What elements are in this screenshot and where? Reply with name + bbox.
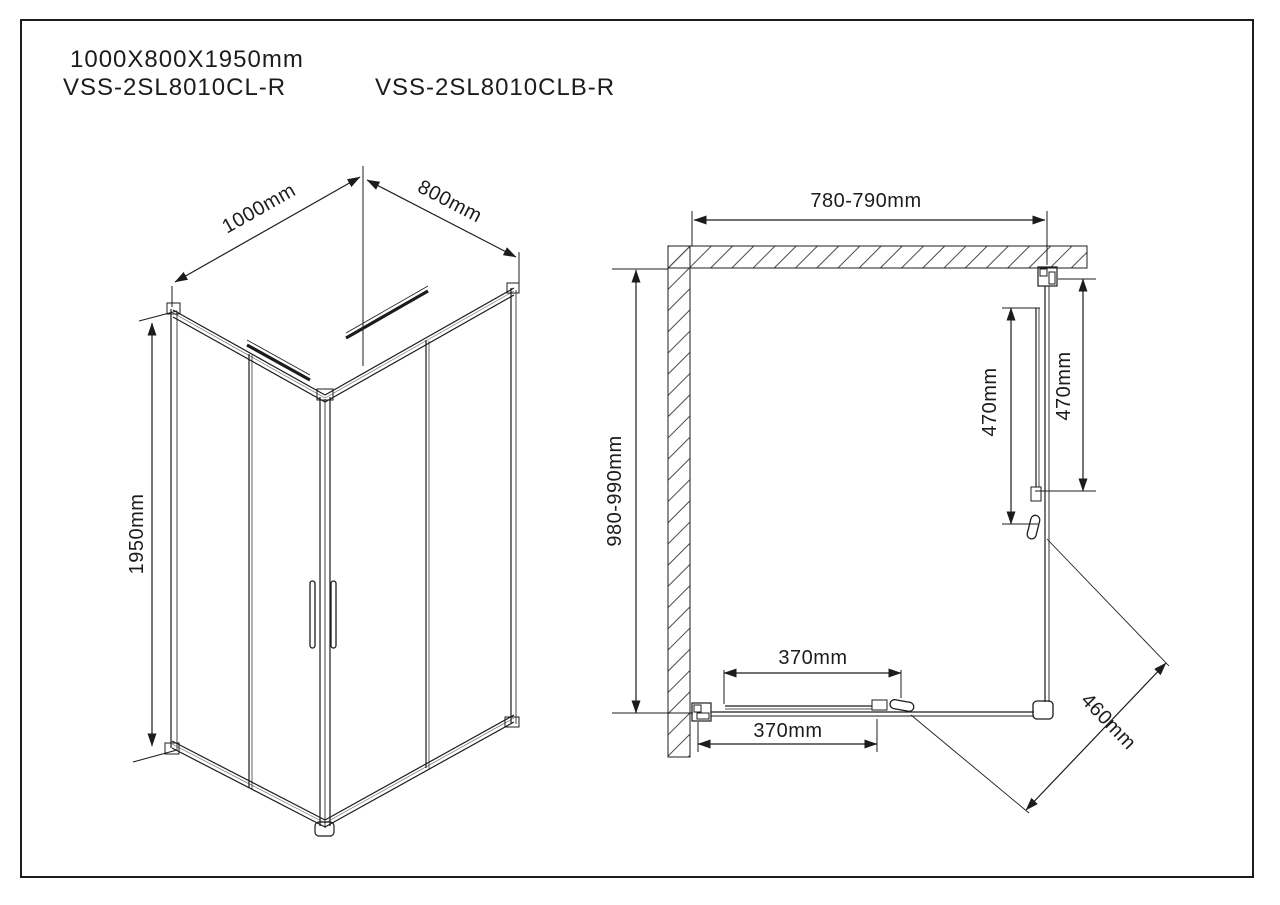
bottom-door-dimension: 370mm [724,647,901,704]
right-fixed-label: 470mm [1053,351,1075,420]
iso-panel-division-left [249,354,252,789]
iso-depth-label: 800mm [414,176,486,227]
iso-width-label: 1000mm [218,179,299,238]
iso-depth-dimension: 800mm [367,176,519,286]
iso-door-handles [310,581,336,648]
plan-right-side-assembly [1026,267,1057,702]
corner-opening-label: 460mm [1076,689,1140,754]
model-name-right: VSS-2SL8010CLB-R [375,74,615,101]
iso-top-rail-right [325,288,514,402]
right-door-label: 470mm [979,367,1001,436]
plan-left-wall [668,246,690,757]
iso-right-edge-profile [505,283,519,727]
title-block: 1000X800X1950mm VSS-2SL8010CL-R VSS-2SL8… [63,46,615,101]
model-name-left: VSS-2SL8010CL-R [63,74,286,101]
right-door-end-block [1031,487,1041,501]
right-door-handle-plan [1026,514,1041,539]
plan-view: 780-790mm 980-990mm 470mm [604,190,1169,813]
bottom-door-handle-plan [889,699,914,712]
left-door-handle [310,581,315,648]
sheet-border [21,20,1253,877]
right-door-handle [331,581,336,648]
plan-depth-label: 980-990mm [604,435,626,546]
iso-left-edge-profile [165,303,180,754]
drawing-sheet: 1000X800X1950mm VSS-2SL8010CL-R VSS-2SL8… [0,0,1280,905]
right-fixed-dimension: 470mm [1035,279,1096,491]
iso-height-label: 1950mm [126,494,148,575]
plan-width-label: 780-790mm [810,190,921,212]
iso-bottom-rail-right [325,715,514,827]
bottom-fixed-label: 370mm [753,720,822,742]
plan-bottom-side-assembly [692,699,1034,721]
technical-drawing-canvas: 1000X800X1950mm VSS-2SL8010CL-R VSS-2SL8… [0,0,1280,905]
size-label: 1000X800X1950mm [70,46,304,73]
plan-depth-dimension: 980-990mm [604,270,636,713]
plan-corner-post [1033,701,1053,719]
corner-opening-dimension: 460mm [911,539,1169,813]
bottom-door-label: 370mm [778,647,847,669]
iso-width-dimension: 1000mm [172,177,360,307]
iso-height-dimension: 1950mm [126,311,177,762]
iso-door-track-right [346,286,428,338]
iso-panel-division-right [426,340,429,769]
plan-top-wall [668,246,1087,268]
bottom-fixed-dimension: 370mm [698,719,877,752]
bottom-door-end-block [872,700,887,710]
isometric-view: 1000mm 800mm 1950mm [126,166,519,836]
